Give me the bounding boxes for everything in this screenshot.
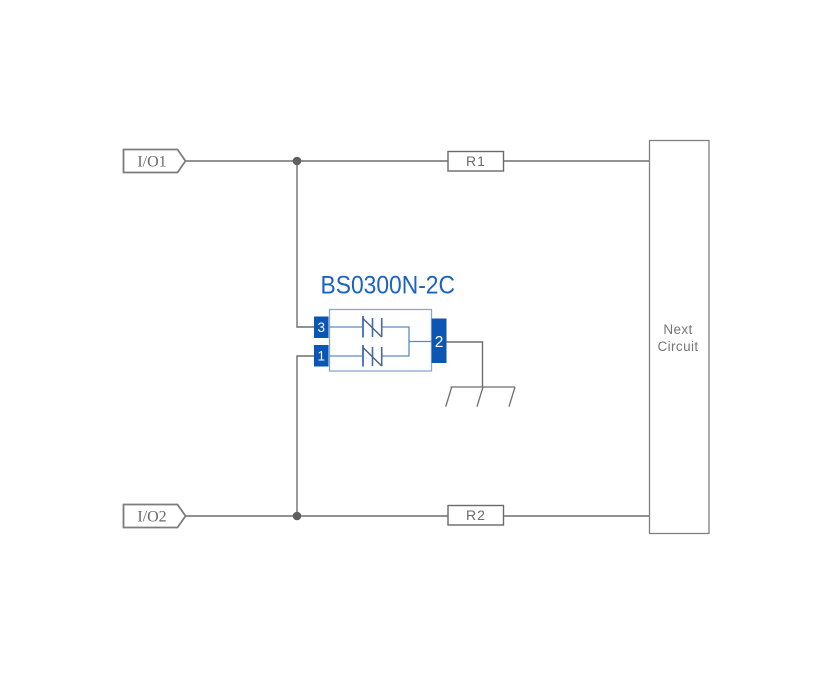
svg-text:I/O1: I/O1 — [137, 154, 166, 171]
svg-text:3: 3 — [317, 320, 325, 335]
svg-text:I/O2: I/O2 — [137, 509, 166, 526]
svg-text:2: 2 — [435, 334, 444, 351]
svg-text:Next: Next — [663, 322, 692, 337]
svg-text:R1: R1 — [466, 153, 486, 169]
svg-text:Circuit: Circuit — [657, 339, 698, 354]
svg-text:R2: R2 — [466, 507, 486, 523]
svg-text:1: 1 — [317, 349, 325, 364]
svg-text:BS0300N-2C: BS0300N-2C — [321, 272, 456, 300]
